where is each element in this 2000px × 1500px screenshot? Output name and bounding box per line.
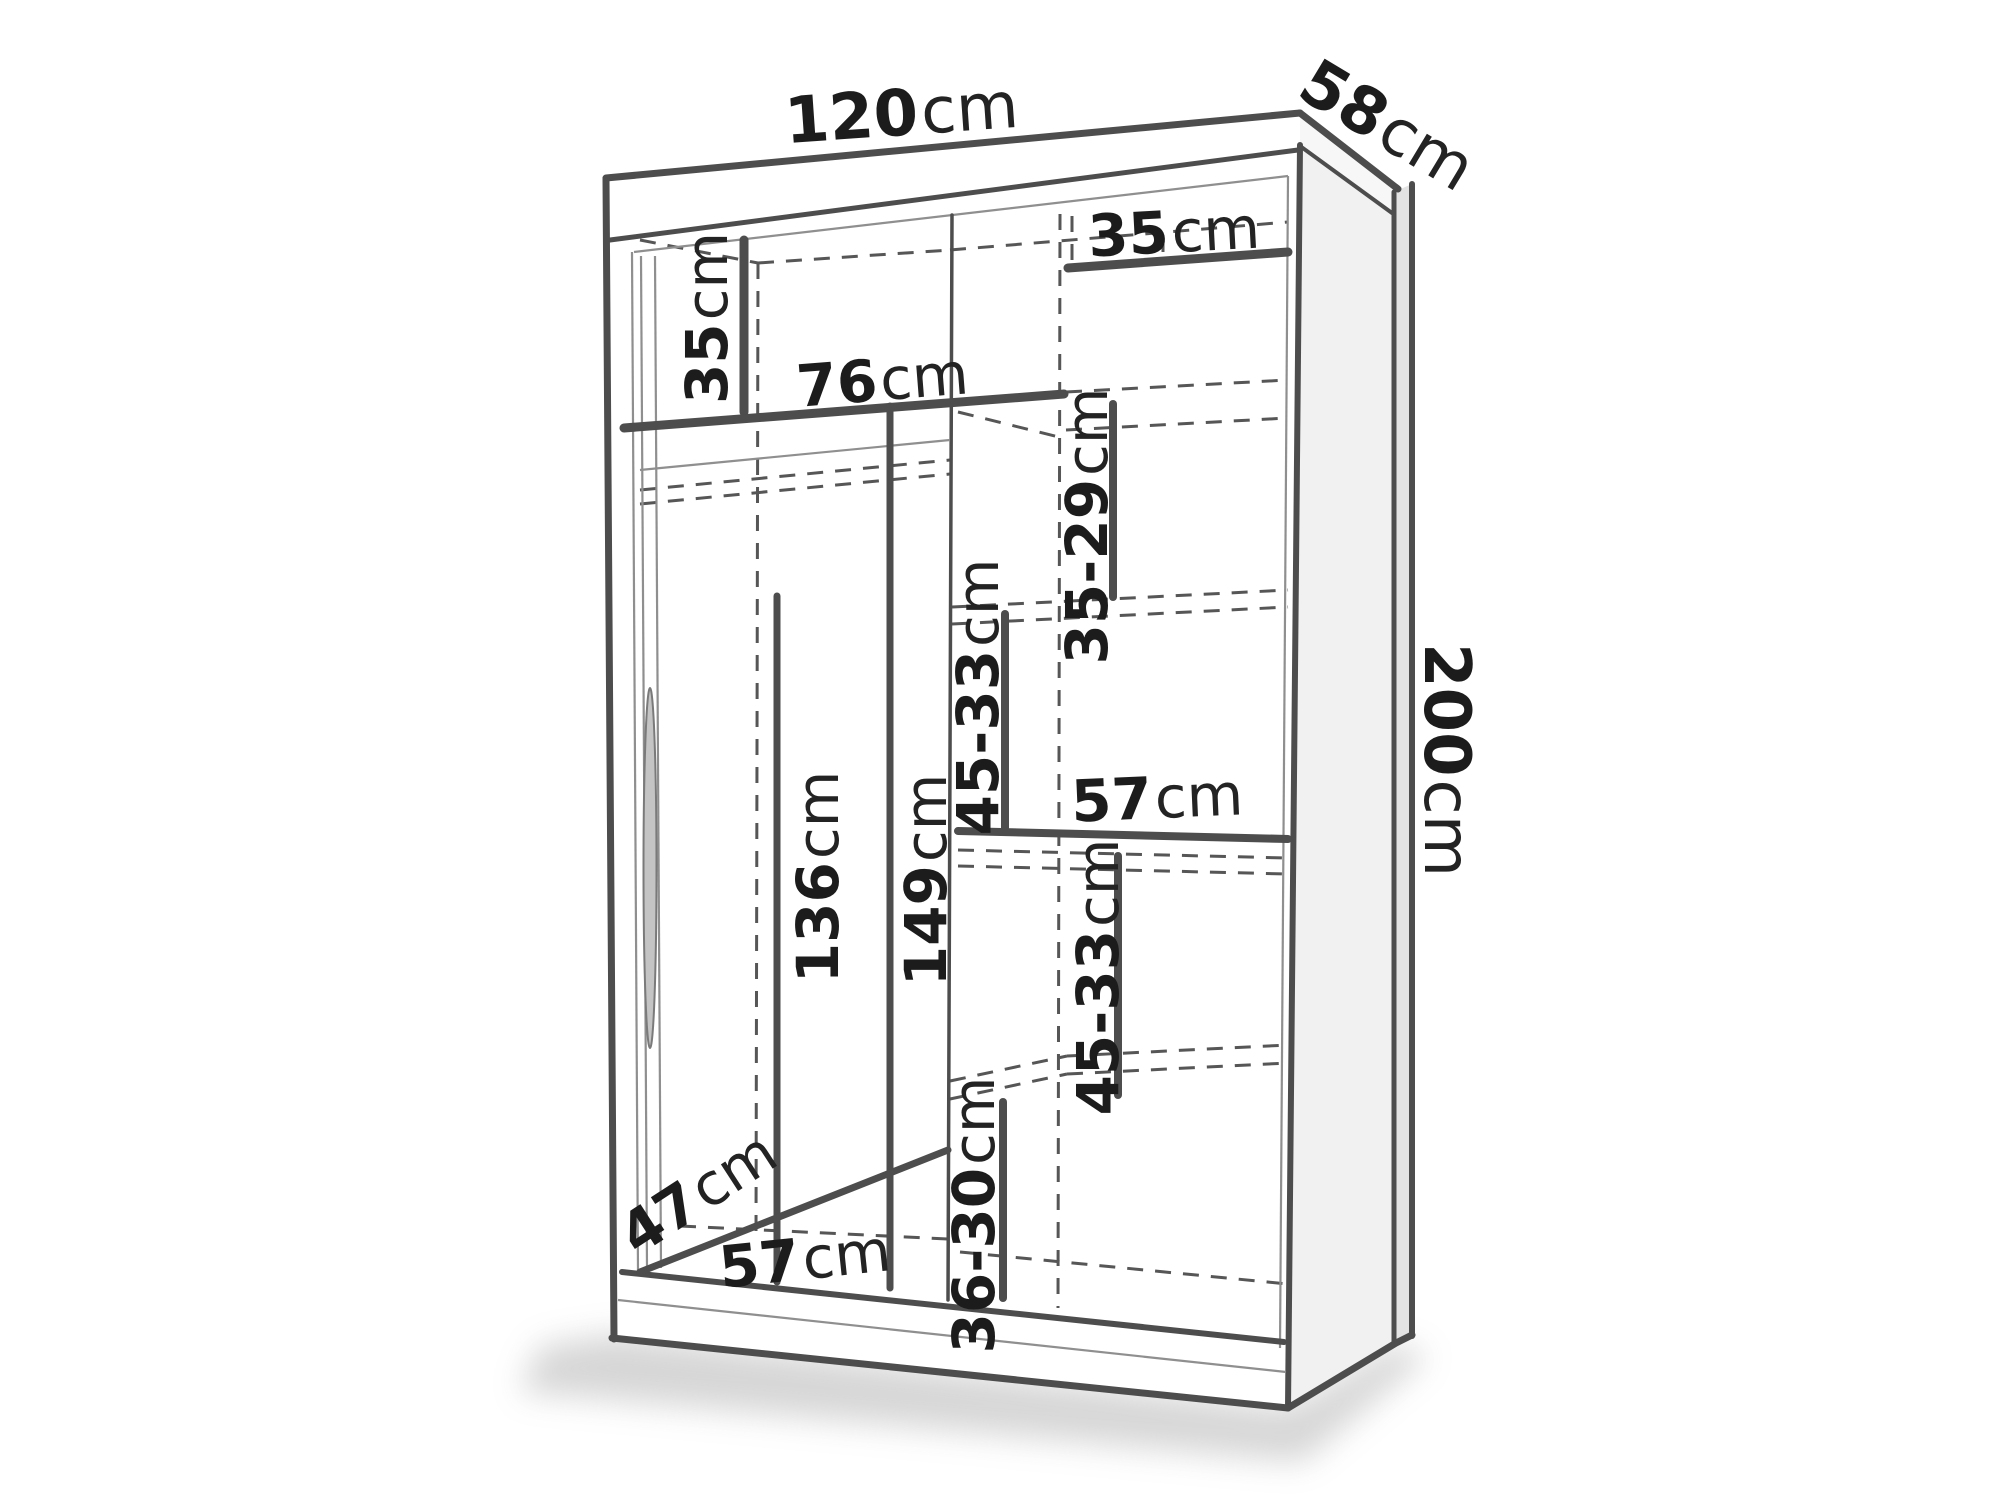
dim-right-shelf-width: 57cm	[1070, 760, 1245, 835]
wardrobe-dimension-diagram: 120cm 58cm 200cm 35cm 35cm 76cm 35-29cm …	[0, 0, 2000, 1500]
dim-top-left-cubby: 35cm	[673, 232, 741, 404]
diagram-canvas: 120cm 58cm 200cm 35cm 35cm 76cm 35-29cm …	[0, 0, 2000, 1500]
dim-right-comp-1: 35-29cm	[1053, 388, 1121, 665]
dim-top-right-shelf: 35cm	[1086, 194, 1261, 271]
dim-left-height-1: 136cm	[784, 771, 852, 983]
dim-right-comp-4: 36-30cm	[940, 1077, 1008, 1354]
dim-left-shelf-width: 76cm	[794, 339, 971, 420]
door-handle	[644, 688, 657, 1048]
dim-height-right: 200cm	[1409, 643, 1483, 877]
dim-left-height-2: 149cm	[892, 774, 960, 986]
dim-right-comp-3: 45-33cm	[1064, 839, 1132, 1116]
side-face-fill	[1289, 146, 1392, 1406]
